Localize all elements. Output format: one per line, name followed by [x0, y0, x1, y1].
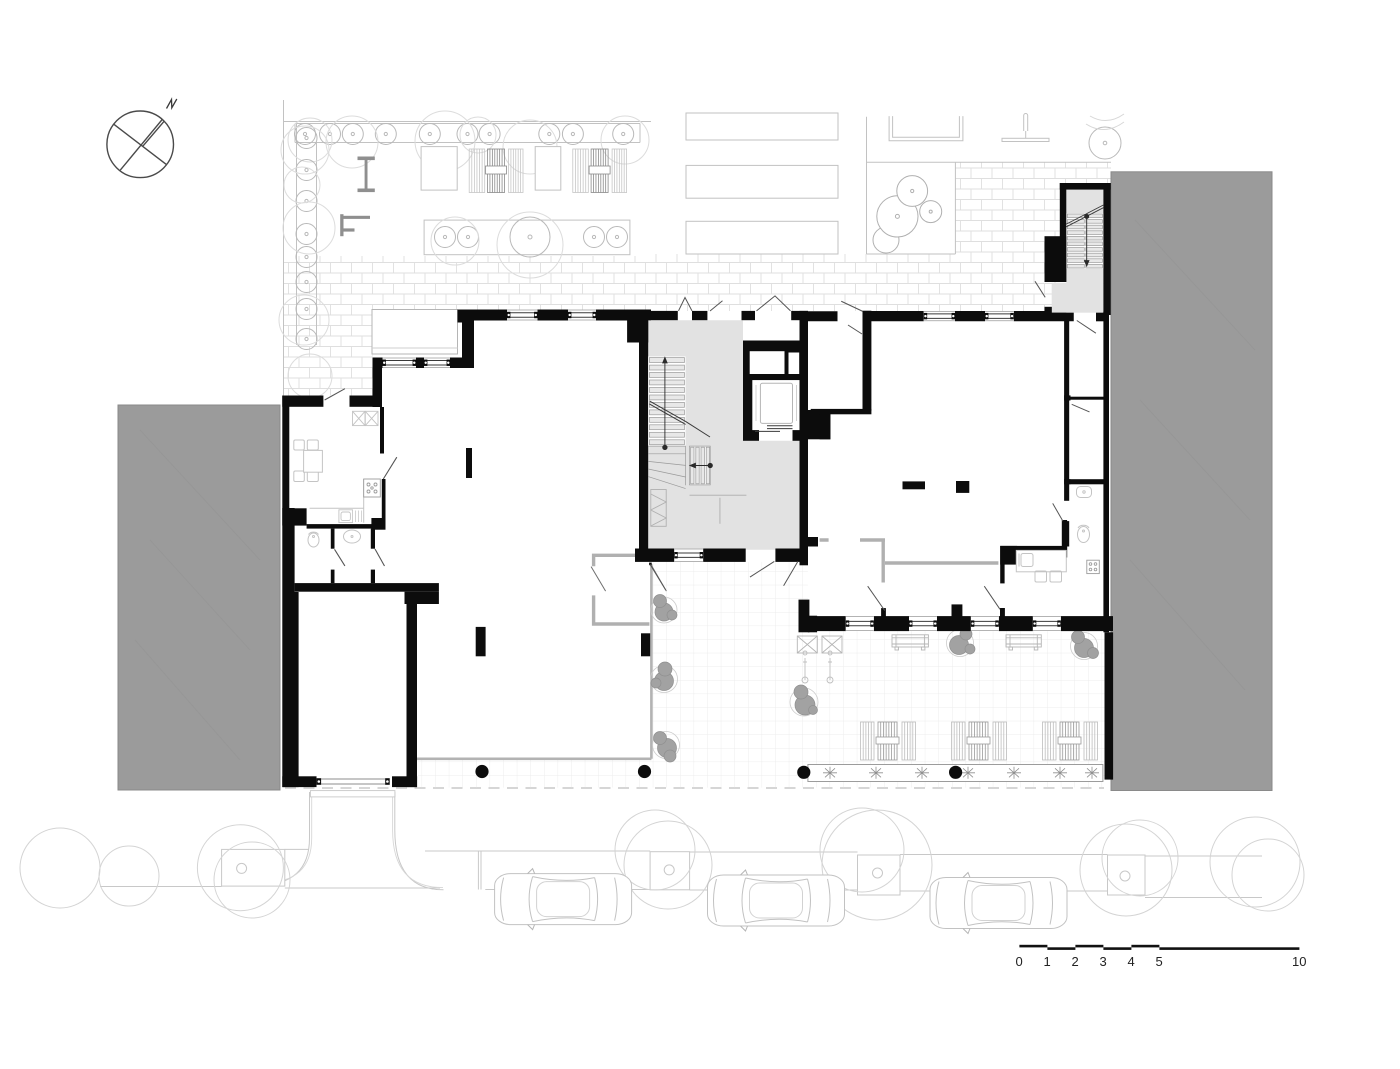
svg-text:4: 4 [1128, 954, 1135, 969]
svg-text:1: 1 [1044, 954, 1051, 969]
svg-text:10: 10 [1292, 954, 1306, 969]
svg-text:5: 5 [1156, 954, 1163, 969]
svg-text:2: 2 [1072, 954, 1079, 969]
svg-text:0: 0 [1016, 954, 1023, 969]
svg-text:3: 3 [1100, 954, 1107, 969]
